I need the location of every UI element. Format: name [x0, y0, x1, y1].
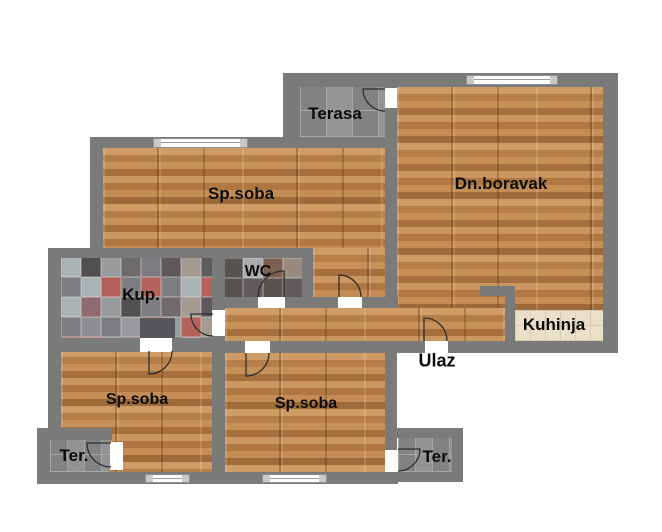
- label-sp-soba-bl: Sp.soba: [106, 391, 168, 409]
- floor-plan: TerasaSp.sobaDn.boravakKup.WCKuhinjaUlaz…: [0, 0, 662, 532]
- kup-bottom-wall: [48, 338, 225, 352]
- kup-floor-tile: [141, 257, 161, 277]
- kup-floor-tile: [101, 257, 121, 277]
- kup-floor-tile: [161, 297, 181, 317]
- dn-boravak-floor: [397, 87, 603, 341]
- sp-bl-window: [145, 474, 190, 483]
- hall-top-wall: [212, 297, 398, 308]
- kup-floor-tile: [101, 317, 121, 337]
- kup-floor-tile: [101, 297, 121, 317]
- hall-floor: [225, 308, 505, 341]
- ter-bl-door-gap: [110, 442, 123, 470]
- mid-vertical-wall: [212, 248, 225, 472]
- kup-floor-tile: [181, 317, 201, 337]
- outer-right-wall: [603, 73, 618, 353]
- divider-right-wall: [385, 73, 397, 308]
- kup-floor-tile: [201, 317, 212, 337]
- kup-floor-tile: [81, 257, 101, 277]
- kup-floor-tile: [121, 317, 141, 337]
- wc-floor-tile: [223, 278, 243, 297]
- kup-floor-tile: [201, 277, 212, 297]
- kup-floor-tile: [201, 297, 212, 317]
- dn-boravak-window: [466, 75, 558, 85]
- label-sp-soba-tl: Sp.soba: [208, 184, 274, 204]
- kup-door-gap: [212, 310, 225, 336]
- wc-floor-tile: [223, 258, 243, 278]
- kup-floor-tile: [161, 257, 181, 277]
- label-wc: WC: [245, 263, 272, 281]
- sp-bl-door-gap: [140, 338, 172, 352]
- wc-door-gap: [258, 297, 285, 308]
- kup-floor-tile: [121, 257, 141, 277]
- label-dn-boravak: Dn.boravak: [455, 174, 548, 194]
- label-kup: Kup.: [122, 285, 160, 305]
- outer-top-wall: [283, 73, 618, 87]
- wc-floor-tile: [283, 278, 302, 297]
- kup-floor-tile: [61, 277, 81, 297]
- kup-floor-tile: [81, 317, 101, 337]
- ter-br-door-gap: [385, 450, 397, 472]
- label-ter-bl: Ter.: [60, 446, 89, 466]
- kup-floor-tile: [161, 277, 181, 297]
- kup-wc-top-wall: [48, 248, 313, 258]
- sp-tl-door-gap: [338, 297, 362, 308]
- sp-soba-tl-ext-floor: [313, 248, 385, 297]
- kup-floor-tile: [201, 257, 212, 277]
- sp-tl-window: [153, 138, 248, 148]
- kup-floor-tile: [61, 297, 81, 317]
- label-ulaz: Ulaz: [418, 351, 455, 372]
- terasa-door-gap: [385, 88, 397, 108]
- kup-floor-tile: [61, 317, 81, 337]
- wc-floor-tile: [283, 258, 302, 278]
- hall-bottom-wall: [212, 341, 618, 353]
- kup-floor-tile: [181, 297, 201, 317]
- kup-floor-tile: [61, 257, 81, 277]
- sp-bm-window: [262, 474, 327, 483]
- label-sp-soba-bm: Sp.soba: [275, 395, 337, 413]
- ter-br-bottom-wall: [393, 472, 463, 482]
- outer-bottom-wall: [37, 472, 398, 484]
- kup-floor-tile: [81, 277, 101, 297]
- kup-fixture: [140, 318, 175, 338]
- kup-floor-tile: [81, 297, 101, 317]
- kup-floor-tile: [181, 277, 201, 297]
- label-terasa: Terasa: [308, 104, 362, 124]
- kitchen-l-vertical-wall: [505, 286, 515, 342]
- sp-bm-door-gap: [245, 341, 270, 353]
- label-kuhinja: Kuhinja: [523, 315, 585, 335]
- ter-bl-top-wall: [37, 428, 112, 440]
- outer-left-upper-wall: [90, 137, 103, 258]
- label-ter-br: Ter.: [423, 447, 452, 467]
- kup-floor-tile: [181, 257, 201, 277]
- kup-floor-tile: [101, 277, 121, 297]
